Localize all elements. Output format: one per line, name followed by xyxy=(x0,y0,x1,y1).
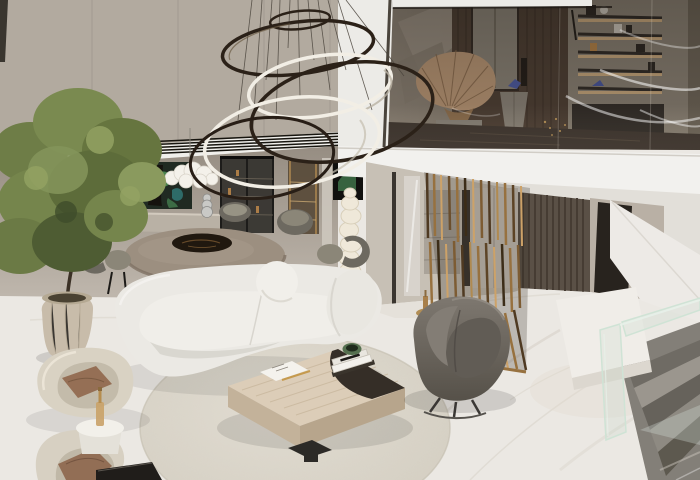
interior-scene-svg xyxy=(0,0,700,480)
sphere-sculpture xyxy=(202,194,213,218)
glass-tint xyxy=(388,0,700,150)
ball-cushion xyxy=(256,261,298,303)
stone-lazy-susan xyxy=(172,234,232,253)
interior-photo xyxy=(0,0,700,480)
mezzanine-interior xyxy=(388,0,700,150)
boucle-armchair-1 xyxy=(37,348,133,418)
corner-column xyxy=(392,172,396,304)
glass-display-cabinet xyxy=(220,156,274,233)
